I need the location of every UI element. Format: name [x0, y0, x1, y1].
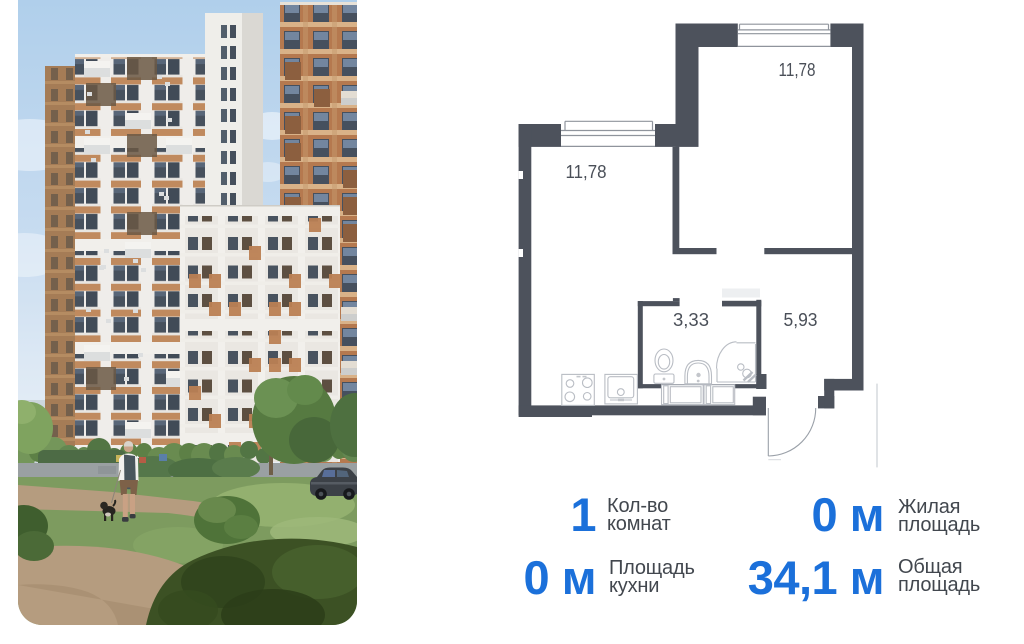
- svg-text:5,93: 5,93: [784, 310, 818, 330]
- svg-text:11,78: 11,78: [566, 162, 607, 182]
- svg-text:11,78: 11,78: [779, 60, 816, 80]
- svg-text:3,33: 3,33: [673, 310, 709, 330]
